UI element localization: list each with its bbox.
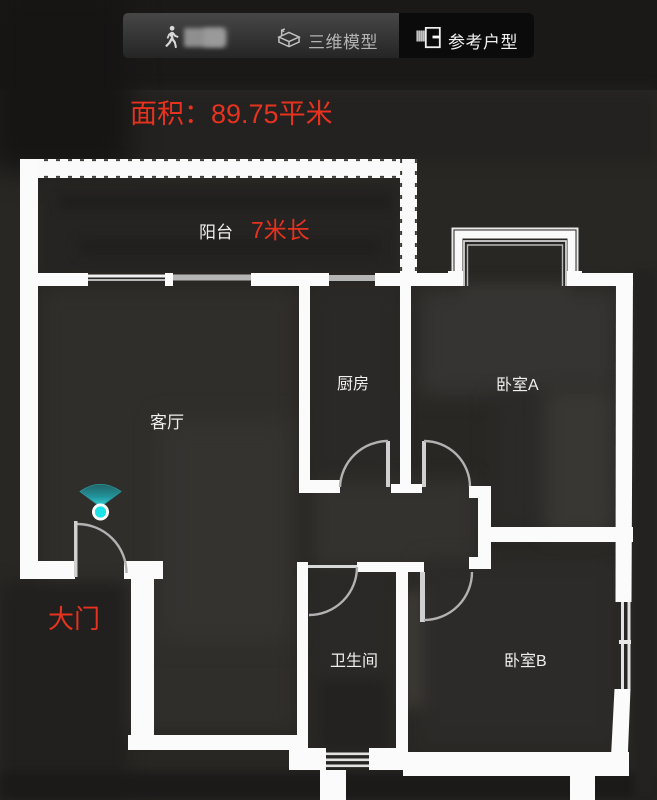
- svg-text:阳台: 阳台: [199, 223, 233, 242]
- svg-text:卧室A: 卧室A: [496, 376, 539, 394]
- svg-text:卫生间: 卫生间: [330, 652, 378, 670]
- svg-text:7米长: 7米长: [251, 217, 310, 243]
- svg-text:大门: 大门: [48, 604, 100, 634]
- svg-text:卧室B: 卧室B: [504, 652, 547, 670]
- svg-text:客厅: 客厅: [150, 413, 184, 432]
- svg-text:厨房: 厨房: [337, 375, 369, 393]
